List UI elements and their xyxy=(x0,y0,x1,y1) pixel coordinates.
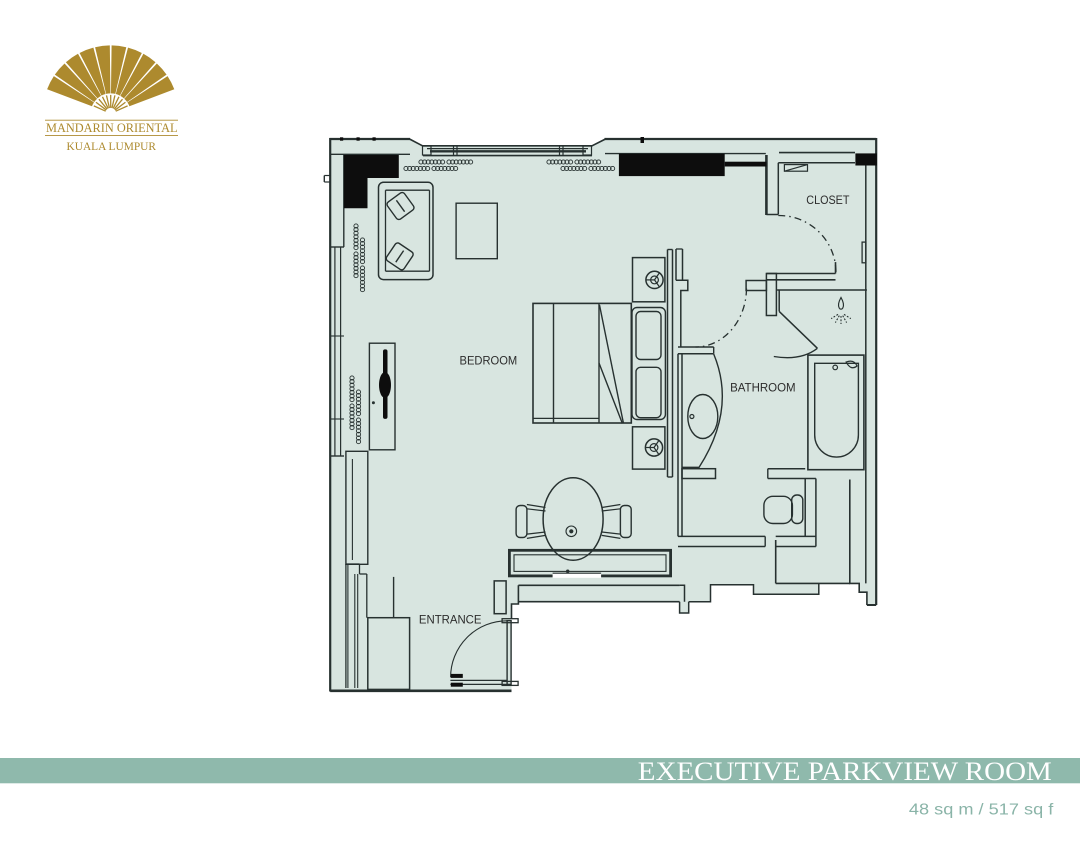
svg-text:KUALA LUMPUR: KUALA LUMPUR xyxy=(67,140,157,153)
svg-text:CLOSET: CLOSET xyxy=(806,193,849,207)
svg-text:BEDROOM: BEDROOM xyxy=(460,353,518,367)
svg-text:BATHROOM: BATHROOM xyxy=(730,380,796,394)
svg-text:ENTRANCE: ENTRANCE xyxy=(419,612,482,626)
svg-text:MANDARIN ORIENTAL: MANDARIN ORIENTAL xyxy=(46,121,178,135)
svg-text:EXECUTIVE PARKVIEW ROOM: EXECUTIVE PARKVIEW ROOM xyxy=(638,757,1052,786)
svg-text:48 sq m / 517 sq f: 48 sq m / 517 sq f xyxy=(909,801,1054,818)
